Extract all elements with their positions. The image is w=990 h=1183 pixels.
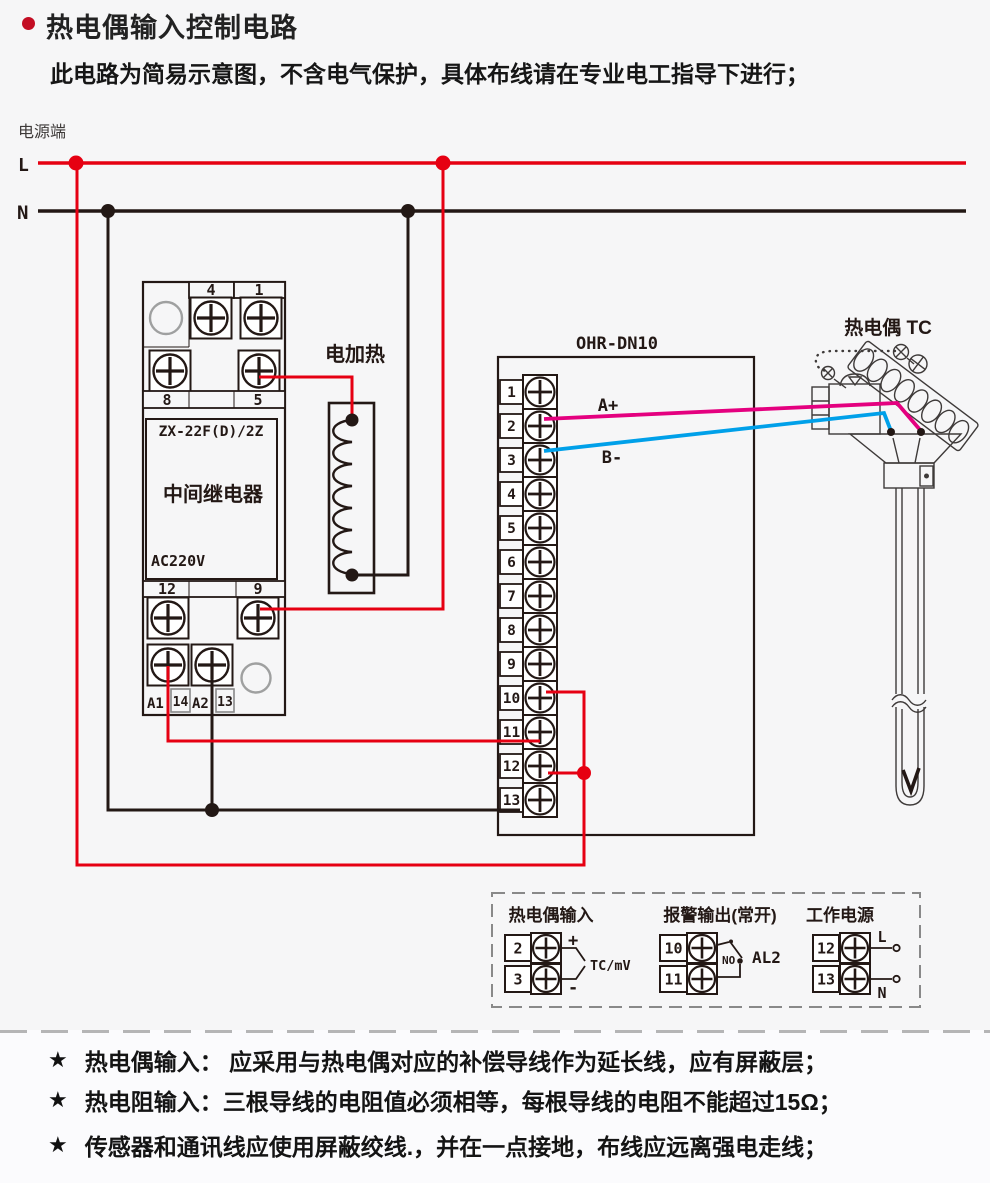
bullet-icon [22,17,35,30]
legend: 热电偶输入 2 3 + - TC/mV 报警输出(常开) 10 11 [492,893,920,1007]
coil-terminal-dot [346,414,359,427]
legend-terminal-11: 11 [664,971,682,989]
relay-model: ZX-22F(D)/2Z [159,424,264,440]
relay-terminal-12: 12 [158,580,176,598]
dn10-terminal-label: 5 [507,521,516,537]
note-item: ★ 传感器和通讯线应使用屏蔽绞线.，并在一点接地，布线应远离强电走线； [48,1128,827,1162]
dn10-terminal-label: 1 [507,385,516,401]
relay-terminal-a2: A2 [192,696,209,712]
relay-terminal-1: 1 [254,281,263,299]
relay-terminal-8: 8 [162,391,171,409]
thermocouple: 热电偶 TC [812,316,979,805]
legend-terminal-2: 2 [513,940,522,958]
tc-terminal-dot [887,428,895,436]
eye-screw-icon [894,345,915,365]
coil-terminal-dot [346,569,359,582]
legend-terminal-12: 12 [817,940,835,958]
dn10-terminal-label: 2 [507,419,516,435]
star-icon: ★ [48,1047,68,1073]
power-label: 电源端 [18,123,66,141]
probe-upper [896,488,924,694]
power-rails: 电源端 L N [17,123,966,224]
supply-leads [870,945,900,982]
intermediate-relay: 4 1 8 5 ZX-22F(D)/2Z 中间继电器 AC220V 12 9 A… [143,281,285,715]
dn10-terminal-label: 3 [507,453,516,469]
legend-terminal-10: 10 [664,940,682,958]
star-icon: ★ [48,1132,68,1158]
bracket [562,948,585,979]
junction-dot [205,803,219,817]
dn10-terminal-label: 13 [503,793,520,809]
note-text: 热电偶输入： 应采用与热电偶对应的补偿导线作为延长线，应有屏蔽层； [85,1043,827,1077]
note-text: 传感器和通讯线应使用屏蔽绞线.，并在一点接地，布线应远离强电走线； [85,1128,827,1162]
legend-tc-input: 热电偶输入 2 3 + - TC/mV [505,905,631,998]
relay-terminal-a1: A1 [147,696,164,712]
line-l-label: L [18,155,29,176]
notes-section: ★ 热电偶输入： 应采用与热电偶对应的补偿导线作为延长线，应有屏蔽层； ★ 热电… [0,1030,990,1183]
page-subtitle: 此电路为简易示意图，不含电气保护，具体布线请在专业电工指导下进行； [50,55,809,89]
relay-terminal-13: 13 [217,695,233,710]
chain-dotted-line [816,351,895,371]
legend-alarm-output: 报警输出(常开) 10 11 NO AL2 [660,905,781,994]
dn10-terminal-label: 12 [503,759,520,775]
note-text: 热电阻输入：三根导线的电阻值必须相等，每根导线的电阻不能超过15Ω； [85,1083,842,1117]
wire-label-a-plus: A+ [598,396,618,416]
controller-title: OHR-DN10 [576,334,658,354]
supply-l-label: L [877,928,886,946]
heater: 电加热 [325,343,385,593]
line-n-label: N [17,202,28,224]
dn10-terminal-label: 8 [507,623,516,639]
wire-label-b-minus: B- [602,448,622,468]
relay-name: 中间继电器 [163,482,264,506]
dn10-terminal-label: 10 [503,691,520,707]
page-title: 热电偶输入控制电路 [46,6,298,45]
junction-dot [577,766,591,780]
relay-terminal-14: 14 [173,695,189,710]
cap-screw-icon [905,351,930,376]
clamp-screw-dot [924,474,929,479]
note-item: ★ 热电偶输入： 应采用与热电偶对应的补偿导线作为延长线，应有屏蔽层； [48,1043,827,1077]
relay-voltage: AC220V [151,552,205,570]
supply-n-label: N [877,984,886,1002]
dn10-terminal-label: 6 [507,555,516,571]
dn10-terminal-label: 7 [507,589,516,605]
legend-tc-title: 热电偶输入 [509,905,594,925]
thermocouple-label: 热电偶 TC [844,316,932,339]
head-taper [850,434,961,463]
note-item: ★ 热电阻输入：三根导线的电阻值必须相等，每根导线的电阻不能超过15Ω； [48,1083,842,1117]
internal-leads [893,438,920,463]
relay-terminal-4: 4 [206,281,215,299]
head-body [829,384,880,434]
relay-terminal-5: 5 [253,391,262,409]
legend-supply-title: 工作电源 [806,905,874,925]
star-icon: ★ [48,1087,68,1113]
alarm-name: AL2 [752,948,781,967]
legend-working-power: 工作电源 12 13 L N [806,905,900,1002]
dn10-terminal-label: 11 [503,725,521,741]
relay-terminal-9: 9 [253,580,262,598]
legend-alarm-title: 报警输出(常开) [663,905,776,925]
legend-terminal-3: 3 [513,971,522,989]
contact-type-label: NO [722,954,736,967]
wiring-diagram: 电源端 L N [0,100,990,1030]
legend-terminal-13: 13 [817,971,835,989]
heater-label: 电加热 [325,343,385,366]
notes-separator [0,1030,990,1033]
legend-tc-signal: TC/mV [590,958,631,974]
page: 热电偶输入控制电路 此电路为简易示意图，不含电气保护，具体布线请在专业电工指导下… [0,0,990,1183]
dn10-terminal-label: 4 [507,487,516,503]
tc-terminal-dot [917,428,925,436]
controller: OHR-DN10 1 2 3 4 5 6 7 8 9 10 11 12 13 A… [498,334,754,835]
polarity-minus: - [568,978,578,998]
eye-screw-icon [822,367,847,389]
dn10-terminal-label: 9 [507,657,516,673]
probe-tip-arrow [903,768,919,791]
